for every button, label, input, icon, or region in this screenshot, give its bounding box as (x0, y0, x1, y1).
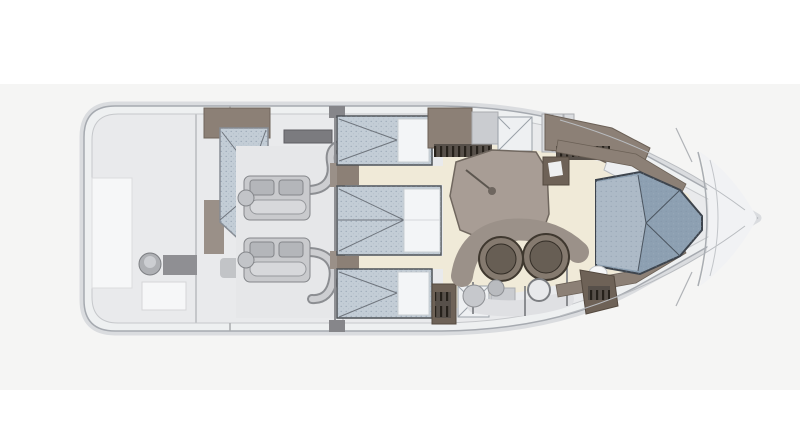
vent-louver-bow-bottom-ticks (588, 286, 610, 300)
salon-cabinet-left (428, 108, 472, 148)
engine-starboard-manifold (250, 262, 306, 276)
guest-cabins-group (337, 116, 441, 318)
stern-stool-top (144, 256, 156, 268)
guest-berth-center (337, 186, 441, 255)
tv-screen (548, 161, 563, 177)
engine-port-valve-cover-1 (250, 180, 274, 195)
engine-starboard-valve-cover-2 (279, 242, 303, 257)
galley-sink-2-bowl (530, 241, 562, 273)
yacht-floorplan-image (0, 0, 800, 446)
galley-faucet (488, 280, 504, 296)
engine-port-manifold (250, 200, 306, 214)
stern-locker (92, 178, 132, 288)
engine-starboard-valve-cover-1 (250, 242, 274, 257)
galley-stool-2 (528, 279, 550, 301)
galley-stool-1 (463, 285, 485, 307)
engine-port-valve-cover-2 (279, 180, 303, 195)
head-tile-top (472, 112, 498, 144)
berth1-pillow (398, 119, 429, 162)
engine-port-flywheel (238, 190, 254, 206)
engine-starboard-flywheel (238, 252, 254, 268)
guest-berth-port (337, 116, 432, 165)
stern-step-dark (163, 255, 197, 275)
vent-louver-bottom-ticks (435, 292, 451, 318)
floorplan-svg (0, 0, 800, 446)
bulkhead-block-bottom (329, 320, 345, 332)
galley-sink-1-bowl (486, 244, 516, 274)
table-pedestal-foot (488, 187, 496, 195)
stern-hatch (142, 282, 186, 310)
guest-berth-starboard (337, 269, 432, 318)
door-block-1 (337, 165, 359, 185)
galley-counter-front (475, 299, 566, 308)
door-block-2 (337, 256, 359, 269)
engine-hatch-bar (284, 130, 332, 143)
berth3-pillow (398, 272, 429, 315)
